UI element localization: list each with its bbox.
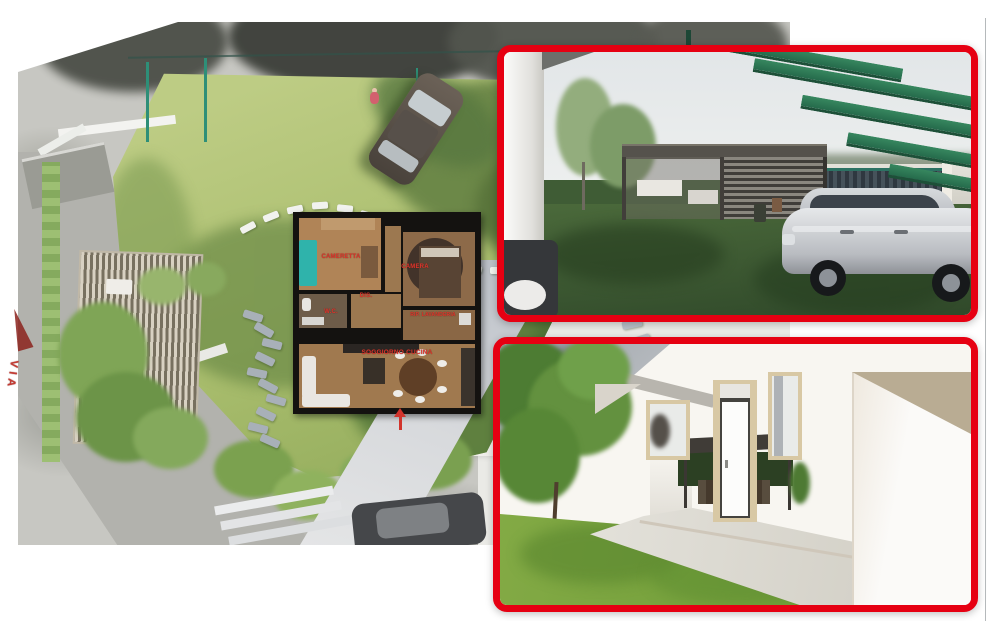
window-glass	[772, 376, 798, 456]
car-wheel	[932, 264, 970, 302]
pergola-post	[720, 157, 724, 220]
sink	[302, 317, 324, 325]
potted-plant	[790, 462, 810, 504]
chair	[415, 396, 425, 403]
white-stepping-stone	[239, 221, 256, 235]
white-stepping-stone	[312, 201, 328, 209]
hallway	[385, 226, 401, 292]
door-frame	[713, 380, 757, 522]
dining-table	[399, 358, 437, 396]
glass-reflection	[650, 414, 670, 448]
door-handle	[894, 230, 908, 234]
tv-cabinet	[461, 348, 475, 406]
room-label-lavanderia: RIP. LAVANDERIA	[393, 313, 473, 318]
garden-tree	[495, 408, 580, 503]
door-handle	[840, 230, 854, 234]
car-wheel	[810, 260, 846, 296]
chair	[437, 360, 447, 367]
gray-paver	[254, 351, 275, 367]
gray-paver	[242, 309, 263, 323]
page-edge-line	[985, 18, 986, 621]
entrance-arrow-icon	[394, 408, 406, 430]
white-stepping-stone	[262, 210, 279, 222]
floor-plan: CAMERETTA CAMERA DIS. W.C. RIP. LAVANDER…	[293, 212, 481, 414]
entry-door	[720, 400, 750, 518]
bed-single	[321, 218, 375, 230]
glass-reflection	[774, 376, 783, 456]
door-transom	[720, 384, 750, 400]
gray-paver	[265, 393, 286, 406]
window-glass	[650, 404, 686, 456]
outdoor-chairs	[688, 190, 718, 204]
gray-paver	[253, 322, 274, 339]
real-estate-collage: VIA	[0, 0, 1007, 621]
gray-paver	[246, 367, 267, 379]
gray-paver	[259, 433, 281, 448]
silver-car	[782, 188, 978, 318]
chair	[437, 386, 447, 393]
bed-double	[419, 246, 461, 298]
room-disimpegno	[351, 294, 401, 328]
headlight	[782, 234, 795, 245]
lawn-shadow	[544, 224, 724, 284]
pillows	[421, 248, 459, 257]
window-right	[768, 372, 802, 460]
toilet	[302, 298, 311, 311]
car-body-line	[792, 226, 978, 232]
white-object	[504, 280, 546, 310]
potted-plant	[772, 198, 782, 212]
gray-paver	[257, 378, 278, 394]
kitchen-island	[363, 358, 385, 384]
gray-paver	[261, 338, 282, 351]
room-label-soggiorno: SOGGIORNO CUCINA	[335, 350, 459, 357]
wheel-rim	[942, 274, 960, 292]
chair	[393, 390, 403, 397]
tree-trunk	[582, 162, 585, 210]
sofa	[302, 394, 350, 407]
house-render-photo	[493, 337, 978, 612]
potted-plant	[754, 204, 766, 222]
sofa	[302, 356, 316, 398]
outdoor-counter	[637, 180, 682, 196]
gray-paver	[255, 406, 276, 422]
gray-paver	[247, 422, 268, 435]
pergola-post	[622, 157, 626, 220]
window-left	[646, 400, 690, 460]
room-label-wc: W.C.	[313, 309, 349, 315]
room-label-cameretta: CAMERETTA	[303, 254, 379, 260]
desk	[361, 246, 378, 278]
wheel-rim	[819, 269, 837, 287]
room-label-camera: CAMERA	[389, 264, 441, 270]
wardrobe	[299, 240, 317, 286]
door-handle	[725, 460, 728, 468]
garden-render-photo	[497, 45, 978, 322]
room-label-dis: DIS.	[351, 293, 381, 299]
